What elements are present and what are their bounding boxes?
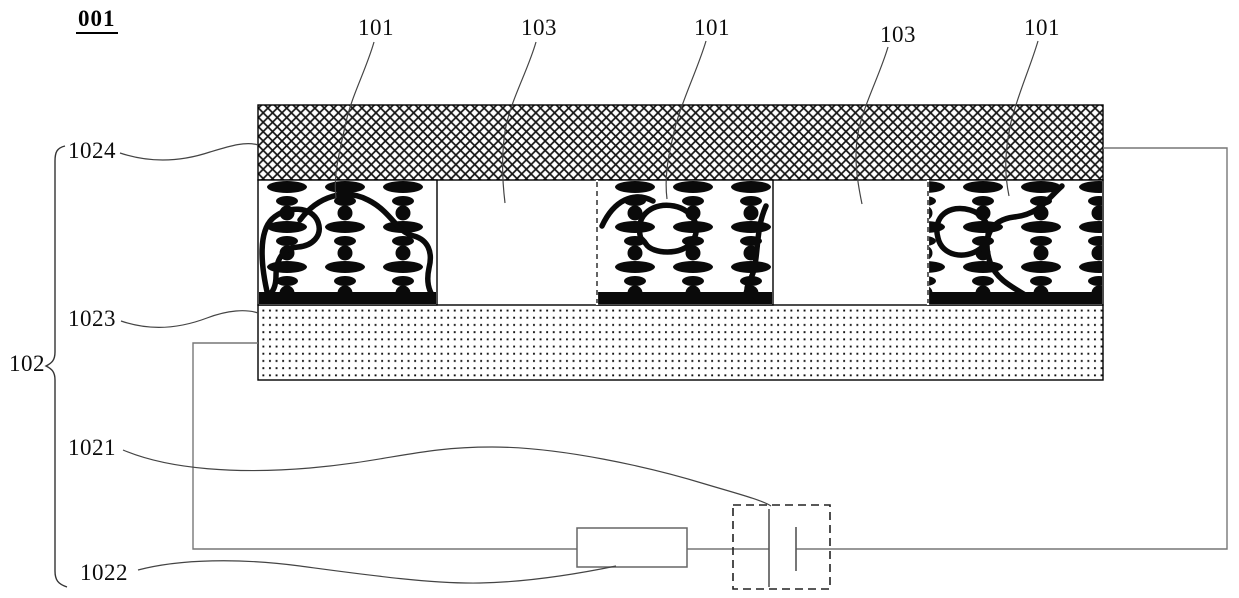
label-103-2: 103: [880, 22, 916, 48]
patent-figure-page: 001 101 103 101 103 101 1024 1023 102 10…: [0, 0, 1239, 598]
label-101-3: 101: [1024, 15, 1060, 41]
diagram-canvas: [0, 0, 1239, 598]
label-102: 102: [9, 351, 45, 377]
leader-1024: [120, 144, 258, 160]
electrode-block-2: [597, 180, 773, 305]
label-1024: 1024: [68, 138, 116, 164]
leader-1021: [123, 447, 771, 506]
brace-102: [46, 146, 67, 587]
bottom-layer-dotted-1023: [258, 305, 1103, 380]
leader-1023: [121, 311, 258, 328]
leader-1022: [138, 561, 616, 583]
label-1021: 1021: [68, 435, 116, 461]
electrode-block-3: [928, 180, 1103, 305]
resistor-box-1022: [577, 528, 687, 567]
power-source-1021: [733, 505, 830, 589]
label-101-2: 101: [694, 15, 730, 41]
label-1023: 1023: [68, 306, 116, 332]
label-1022: 1022: [80, 560, 128, 586]
top-layer-hatched-1024: [258, 105, 1103, 180]
label-103-1: 103: [521, 15, 557, 41]
dashed-box: [733, 505, 830, 589]
figure-number: 001: [76, 6, 118, 34]
label-101-1: 101: [358, 15, 394, 41]
electrode-block-1: [258, 180, 437, 305]
